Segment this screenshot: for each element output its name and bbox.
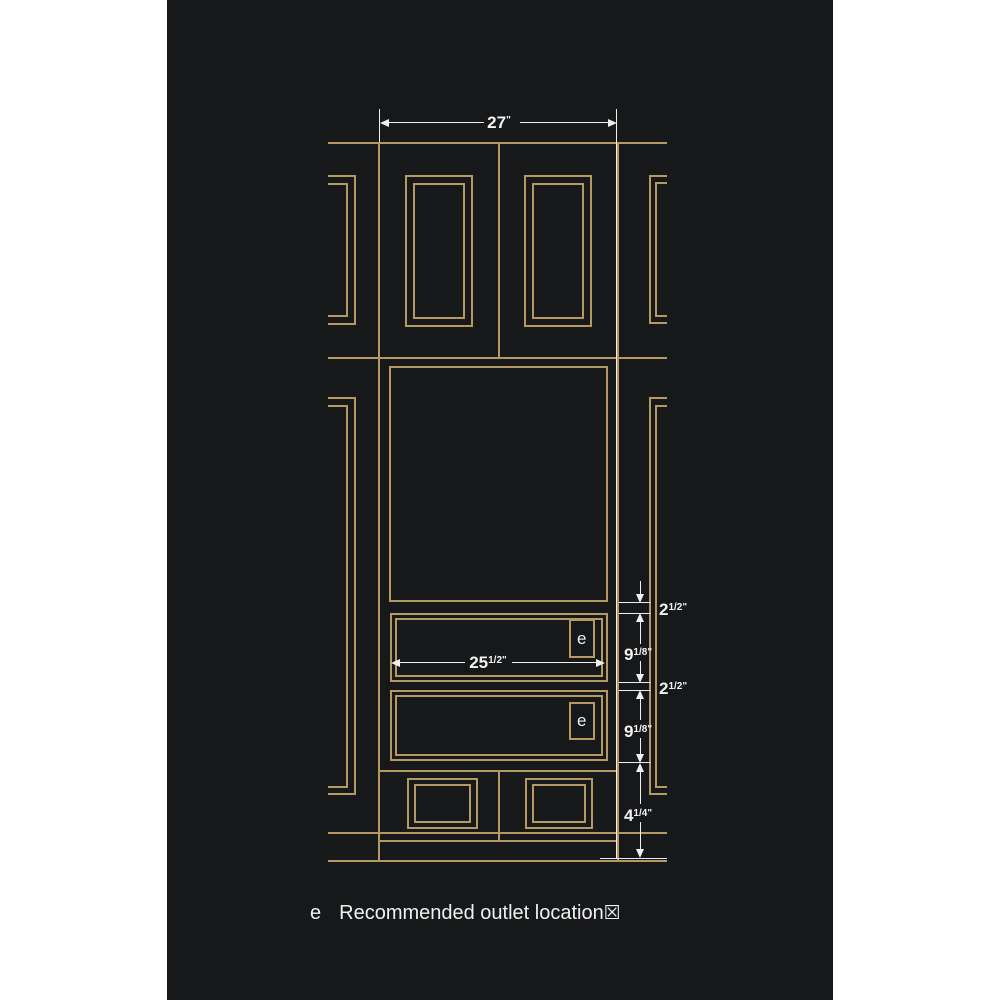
dim-91b-line-bottom — [640, 738, 641, 754]
dim-91b-label: 91/8" — [615, 721, 661, 740]
missing-glyph: ☒ — [604, 902, 621, 924]
tick-682 — [619, 682, 651, 683]
installation-diagram-page: e e 27" 251/2" 21/2" 91/8" 21/2" — [0, 0, 1000, 1000]
dim-gap1-label: 21/2" — [659, 599, 687, 618]
outlet-label-1: e — [577, 630, 586, 647]
dim-41-arrow-up — [636, 763, 644, 772]
legend-outlet-symbol: e — [310, 902, 321, 924]
dim-gap1-stub — [640, 581, 641, 594]
upper-left-pilaster-inner — [328, 183, 348, 317]
lower-center-stile — [498, 770, 500, 842]
dim-91a-line-bottom — [640, 661, 641, 674]
outlet-label-2: e — [577, 712, 586, 729]
dim-27-label: 27" — [467, 112, 531, 131]
dim-41-line-top — [640, 772, 641, 804]
dim-25-arrow-left — [391, 659, 400, 667]
tick-762 — [619, 762, 651, 763]
dim-27-arrow-left — [380, 119, 389, 127]
dim-41-line-bottom — [640, 822, 641, 849]
dim-91a-arrow-up — [636, 613, 644, 622]
dim-25-line-right — [512, 662, 597, 663]
dim-gap1-arrow-down — [636, 594, 644, 603]
upper-appliance-opening — [389, 366, 608, 602]
tick-690 — [619, 690, 651, 691]
base-panel-left-inner — [414, 784, 471, 823]
dim-41-label: 41/4" — [615, 805, 661, 824]
tick-858 — [600, 858, 667, 859]
tick-602 — [619, 602, 651, 603]
base-panel-right-inner — [532, 784, 586, 823]
dim-91a-label: 91/8" — [615, 644, 661, 663]
dim-gap2-label: 21/2" — [659, 678, 687, 697]
legend: eRecommended outlet location☒ — [310, 901, 621, 925]
dim-27-line-right — [520, 122, 614, 123]
dim-27-arrow-right — [608, 119, 617, 127]
cabinet-right-stile — [617, 142, 619, 862]
cabinet-left-stile — [378, 142, 380, 862]
extension-line-right — [616, 109, 617, 858]
tick-613 — [619, 613, 651, 614]
dim-91b-arrow-up — [636, 690, 644, 699]
upper-panel-left-inner — [413, 183, 465, 319]
legend-text: Recommended outlet location — [339, 902, 604, 924]
dim-91a-arrow-down — [636, 674, 644, 683]
dim-25-label: 251/2" — [455, 652, 521, 671]
dim-91a-line-top — [640, 622, 641, 644]
dim-91b-line-top — [640, 699, 641, 720]
dim-25-arrow-right — [596, 659, 605, 667]
upper-panel-right-inner — [532, 183, 584, 319]
dim-91b-arrow-down — [636, 754, 644, 763]
upper-right-pilaster-inner — [655, 182, 667, 317]
dim-41-arrow-down — [636, 849, 644, 858]
upper-center-stile — [498, 142, 500, 359]
main-left-pilaster-inner — [328, 405, 348, 788]
